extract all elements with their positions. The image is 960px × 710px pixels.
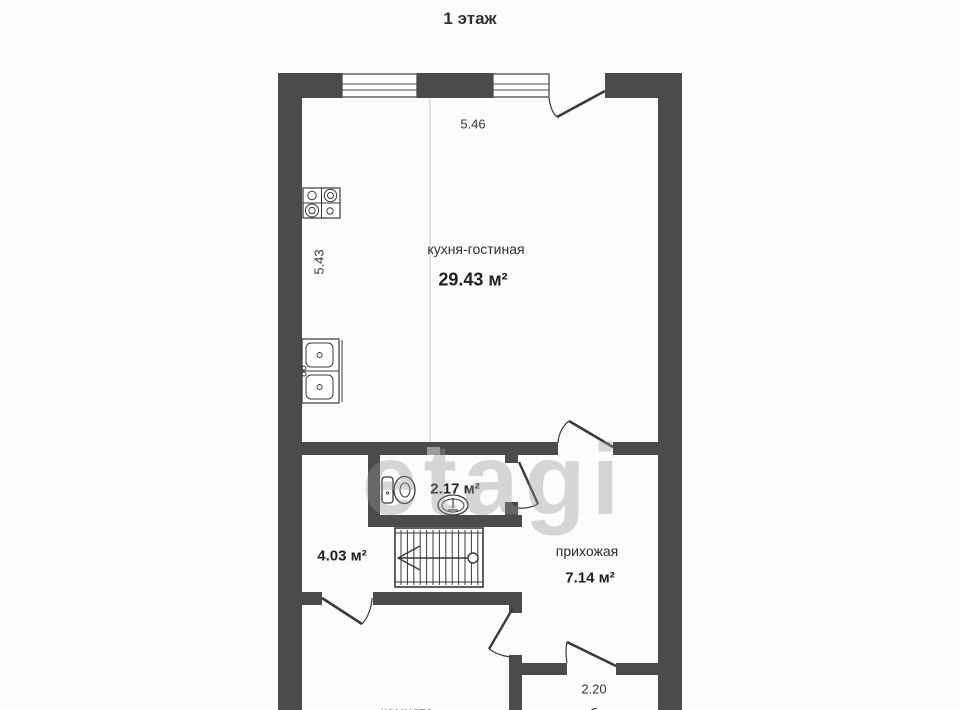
floor-plan-drawing	[0, 0, 960, 710]
floor-title: 1 этаж	[443, 9, 496, 29]
wall-hall-bottom-main	[373, 592, 522, 605]
wall-hall-bottom-stub	[302, 592, 322, 605]
washbasin-icon	[438, 495, 468, 515]
kitchen-sink-icon	[302, 339, 342, 403]
stove-icon	[303, 188, 340, 218]
door-swing-icon	[566, 642, 616, 666]
wall-right	[658, 73, 682, 710]
wall-toilet-bottom	[368, 515, 522, 527]
room-label-hallway: прихожая	[556, 543, 618, 559]
room-label-kitchen: кухня-гостиная	[427, 241, 524, 257]
stairs-icon	[395, 528, 483, 587]
room-area-hallway: 7.14 м²	[565, 570, 614, 587]
wall-top-b	[417, 73, 493, 98]
wall-tambour-top-right	[616, 663, 658, 675]
wall-toilet-right-bottom	[505, 502, 518, 517]
dimension-tick	[427, 447, 440, 455]
door-swing-icon	[518, 462, 538, 508]
wall-left	[278, 73, 302, 710]
window-icon	[342, 74, 417, 97]
floor-plan: 1 этаж 5.46 5.43 2.20 кухня-гостиная 29.…	[0, 0, 960, 710]
dimension-kitchen-depth: 5.43	[312, 249, 327, 274]
door-swing-icon	[549, 91, 605, 117]
door-swing-icon	[489, 608, 513, 657]
wall-tambour-top-left	[509, 663, 567, 675]
window-icon	[493, 74, 549, 97]
room-label-bedroom: комната	[381, 704, 434, 710]
room-area-toilet: 2.17 м²	[430, 481, 479, 498]
room-area-kitchen: 29.43 м²	[438, 270, 507, 291]
room-area-stair-hall: 4.03 м²	[317, 548, 366, 565]
toilet-icon	[382, 477, 415, 504]
room-label-tambour: тамбур	[566, 705, 612, 710]
dimension-kitchen-width: 5.46	[460, 117, 485, 132]
dimension-tambour-width: 2.20	[581, 682, 606, 697]
wall-kitchen-bottom-right	[613, 442, 658, 455]
door-swing-icon	[558, 421, 613, 447]
door-swing-icon	[322, 598, 372, 624]
wall-toilet-right-top	[505, 455, 518, 463]
